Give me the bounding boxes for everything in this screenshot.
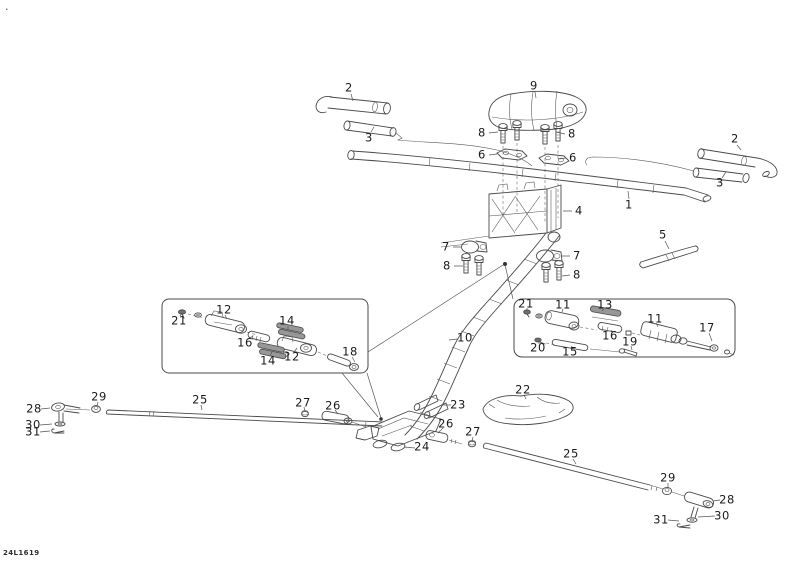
part-label-2: 2 [731,133,739,145]
part-label-21: 21 [171,315,187,327]
part-label-20: 20 [530,342,546,354]
part-label-26: 26 [325,400,341,412]
diagram-artwork [0,0,800,565]
part-label-14: 14 [260,355,276,367]
part-label-8: 8 [573,269,581,281]
part-label-27: 27 [465,426,481,438]
part-label-28: 28 [719,494,735,506]
part-label-29: 29 [91,391,107,403]
part-label-7: 7 [573,250,581,262]
part-label-6: 6 [478,149,486,161]
corner-mark: . [5,0,9,13]
part-label-17: 17 [699,322,715,334]
tie-rod-end-right [662,487,714,528]
part-label-25: 25 [192,394,208,406]
part-label-3: 3 [365,132,373,144]
part-label-14: 14 [279,315,295,327]
part-label-30: 30 [714,510,730,522]
part-label-28: 28 [26,403,42,415]
part-label-29: 29 [660,472,676,484]
part-label-31: 31 [653,514,669,526]
part-label-27: 27 [295,397,311,409]
part-label-21: 21 [518,298,534,310]
part-label-12: 12 [216,304,232,316]
part-label-3: 3 [716,177,724,189]
steering-arm-assembly [356,395,448,452]
steering-column [405,233,559,439]
handlebar-pad [489,91,586,130]
part-label-2: 2 [345,82,353,94]
part-label-8: 8 [568,128,576,140]
part-label-9: 9 [530,80,538,92]
part-label-8: 8 [478,127,486,139]
part-label-11: 11 [555,299,571,311]
drawing-code: 24L1619 [3,549,39,557]
column-clamp-bolts [462,254,563,282]
diagram-canvas: 2398866231457788211214161412182111131117… [0,0,800,565]
part-label-10: 10 [457,332,473,344]
part-label-22: 22 [515,384,531,396]
protector-plate [483,394,573,424]
part-label-12: 12 [284,351,300,363]
part-label-18: 18 [342,346,358,358]
part-label-15: 15 [562,346,578,358]
part-label-24: 24 [414,441,430,453]
part-label-5: 5 [659,229,667,241]
part-label-23: 23 [450,399,466,411]
handlebar [347,150,711,202]
strap [640,246,698,268]
part-label-26: 26 [438,418,454,430]
part-label-31: 31 [25,426,41,438]
part-label-7: 7 [442,241,450,253]
part-label-19: 19 [622,336,638,348]
part-label-8: 8 [443,260,451,272]
grip-left [316,96,391,114]
part-label-16: 16 [602,330,618,342]
part-label-16: 16 [237,337,253,349]
grip-heater-right [586,157,750,183]
part-label-1: 1 [625,199,633,211]
part-label-4: 4 [575,205,583,217]
part-label-13: 13 [597,299,613,311]
part-label-11: 11 [647,313,663,325]
tie-rod-right [425,430,663,491]
part-label-25: 25 [563,448,579,460]
label-leader-lines [40,92,741,521]
part-label-6: 6 [569,152,577,164]
